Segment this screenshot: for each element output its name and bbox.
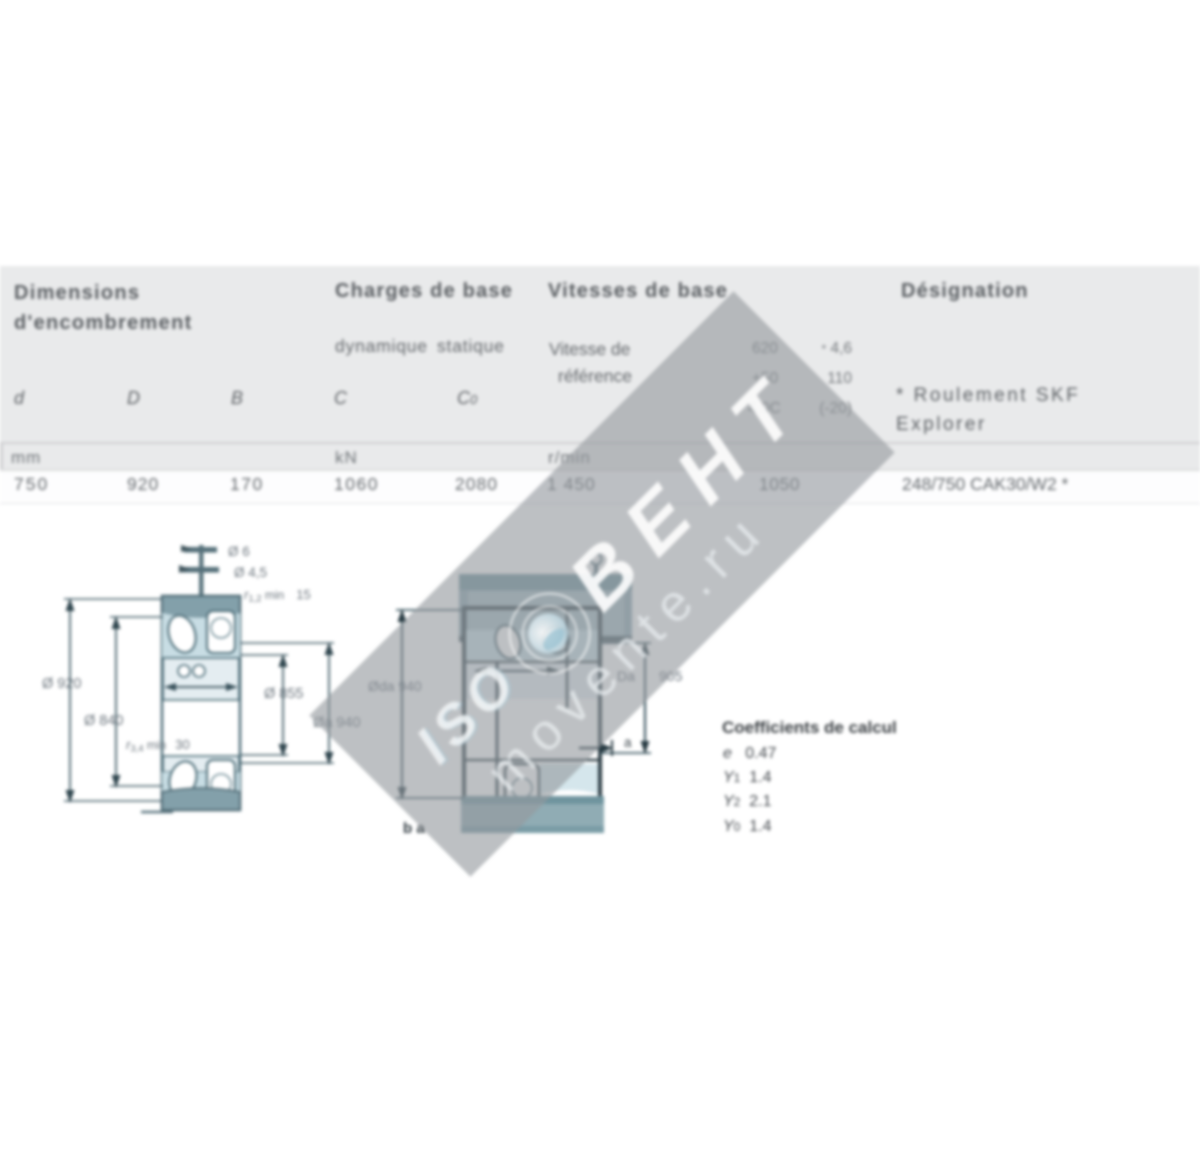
svg-text:Ø 920: Ø 920 xyxy=(42,676,82,692)
svg-text:Ø 4,5: Ø 4,5 xyxy=(234,565,267,580)
svg-text:Ø 840: Ø 840 xyxy=(84,713,124,729)
svg-text:Ø 6: Ø 6 xyxy=(228,544,250,559)
svg-text:r3,4 min30: r3,4 min30 xyxy=(126,737,190,755)
svg-text:Ø 855: Ø 855 xyxy=(264,686,304,702)
svg-text:a: a xyxy=(624,735,632,750)
svg-text:r1,2 min15: r1,2 min15 xyxy=(244,587,311,605)
